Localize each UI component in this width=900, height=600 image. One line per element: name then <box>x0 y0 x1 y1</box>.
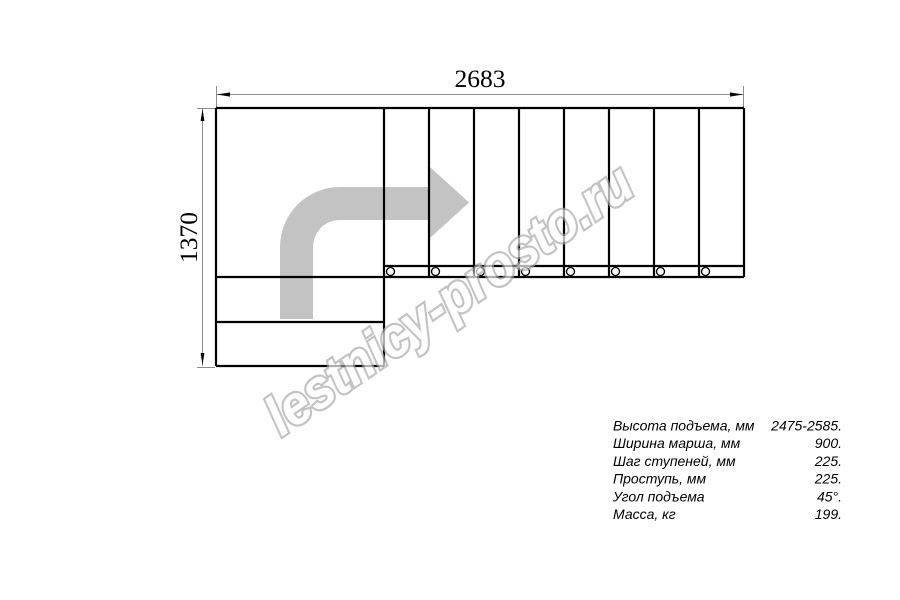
svg-text:2683: 2683 <box>455 64 506 93</box>
svg-text:900.: 900. <box>815 435 842 451</box>
svg-text:Ширина марша, мм: Ширина марша, мм <box>613 435 741 451</box>
svg-text:199.: 199. <box>815 506 842 522</box>
svg-text:225.: 225. <box>814 453 842 469</box>
svg-text:Масса, кг: Масса, кг <box>613 506 676 522</box>
svg-text:Проступь, мм: Проступь, мм <box>613 471 707 487</box>
svg-text:225.: 225. <box>814 471 842 487</box>
svg-text:2475-2585.: 2475-2585. <box>770 418 842 434</box>
svg-text:Угол подъема: Угол подъема <box>612 488 705 504</box>
svg-text:Шаг ступеней, мм: Шаг ступеней, мм <box>613 453 736 469</box>
svg-text:45°.: 45°. <box>817 488 842 504</box>
svg-text:Высота подъема, мм: Высота подъема, мм <box>613 418 755 434</box>
svg-text:1370: 1370 <box>174 212 203 263</box>
